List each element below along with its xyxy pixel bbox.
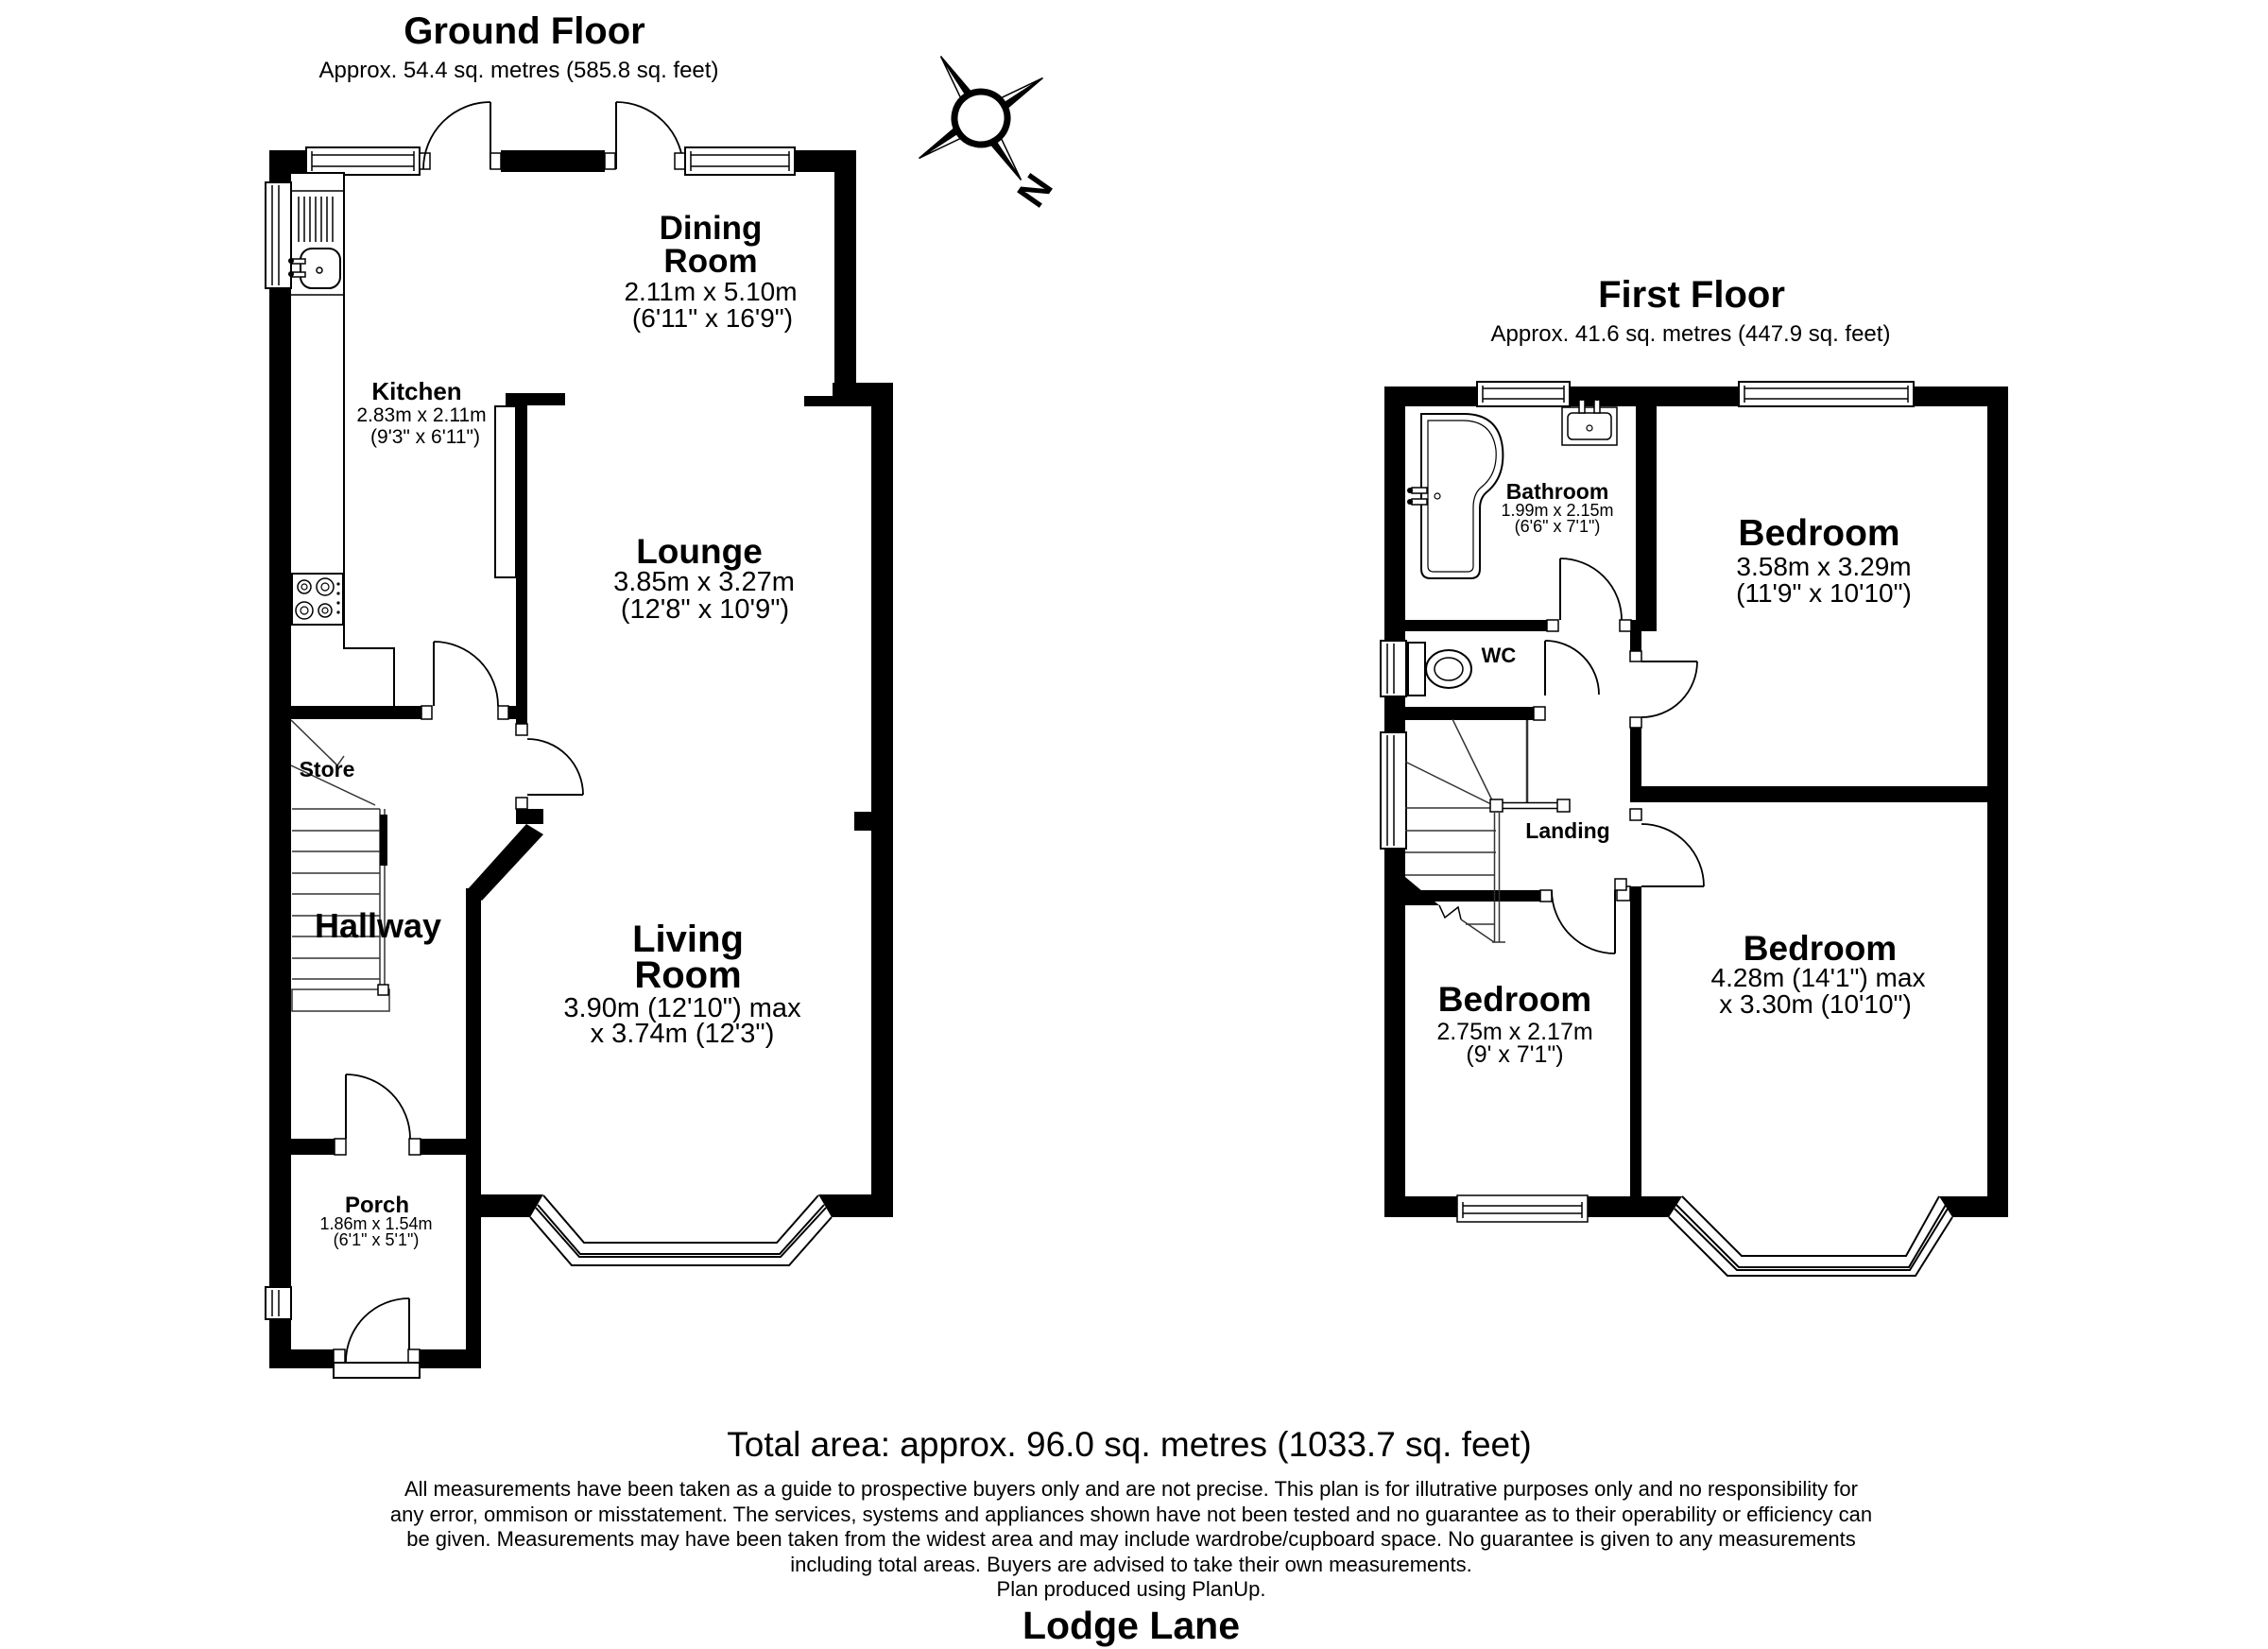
svg-text:First Floor: First Floor: [1598, 274, 1785, 316]
svg-text:Bedroom: Bedroom: [1438, 980, 1591, 1019]
svg-text:Bedroom: Bedroom: [1744, 929, 1897, 968]
svg-text:x 3.30m (10'10"): x 3.30m (10'10"): [1719, 989, 1912, 1019]
svg-text:Lounge: Lounge: [636, 532, 763, 571]
svg-text:Ground Floor: Ground Floor: [404, 10, 645, 52]
svg-text:Bedroom: Bedroom: [1738, 513, 1899, 554]
svg-text:Total area: approx. 96.0 sq. m: Total area: approx. 96.0 sq. metres (103…: [727, 1425, 1531, 1464]
svg-text:x 3.74m (12'3"): x 3.74m (12'3"): [591, 1019, 775, 1049]
svg-text:(11'9" x 10'10"): (11'9" x 10'10"): [1736, 578, 1912, 608]
svg-text:be given. Measurements may hav: be given. Measurements may have been tak…: [406, 1527, 1856, 1551]
svg-text:(12'8" x 10'9"): (12'8" x 10'9"): [621, 594, 789, 625]
svg-text:Approx. 54.4 sq. metres (585.8: Approx. 54.4 sq. metres (585.8 sq. feet): [319, 58, 719, 83]
svg-text:Plan produced using PlanUp.: Plan produced using PlanUp.: [997, 1577, 1266, 1601]
svg-text:Kitchen: Kitchen: [371, 377, 461, 405]
svg-text:Approx. 41.6 sq. metres (447.9: Approx. 41.6 sq. metres (447.9 sq. feet): [1491, 321, 1891, 347]
svg-text:2.11m x 5.10m: 2.11m x 5.10m: [624, 277, 797, 306]
svg-text:(9' x 7'1"): (9' x 7'1"): [1466, 1041, 1563, 1068]
svg-text:Room: Room: [663, 243, 757, 280]
svg-text:3.58m x 3.29m: 3.58m x 3.29m: [1736, 552, 1911, 581]
svg-text:Landing: Landing: [1525, 818, 1609, 843]
svg-text:Hallway: Hallway: [315, 906, 441, 945]
svg-text:WC: WC: [1482, 644, 1517, 667]
svg-text:All measurements have been tak: All measurements have been taken as a gu…: [404, 1477, 1858, 1501]
svg-text:(9'3" x 6'11"): (9'3" x 6'11"): [370, 426, 480, 448]
svg-text:Lodge Lane: Lodge Lane: [1022, 1604, 1240, 1647]
svg-text:Room: Room: [634, 954, 741, 996]
svg-text:(6'1" x 5'1"): (6'1" x 5'1"): [334, 1230, 420, 1249]
svg-text:Store: Store: [300, 757, 355, 782]
svg-text:(6'6" x 7'1"): (6'6" x 7'1"): [1515, 517, 1601, 536]
svg-text:2.83m x 2.11m: 2.83m x 2.11m: [356, 404, 486, 426]
svg-text:(6'11" x 16'9"): (6'11" x 16'9"): [632, 303, 793, 333]
svg-text:4.28m (14'1") max: 4.28m (14'1") max: [1711, 963, 1926, 992]
svg-text:any error, ommison or misstate: any error, ommison or misstatement. The …: [390, 1503, 1872, 1526]
svg-text:including total areas. Buyers: including total areas. Buyers are advise…: [790, 1553, 1472, 1576]
svg-text:3.85m x 3.27m: 3.85m x 3.27m: [613, 567, 795, 597]
svg-text:Dining: Dining: [660, 210, 763, 247]
